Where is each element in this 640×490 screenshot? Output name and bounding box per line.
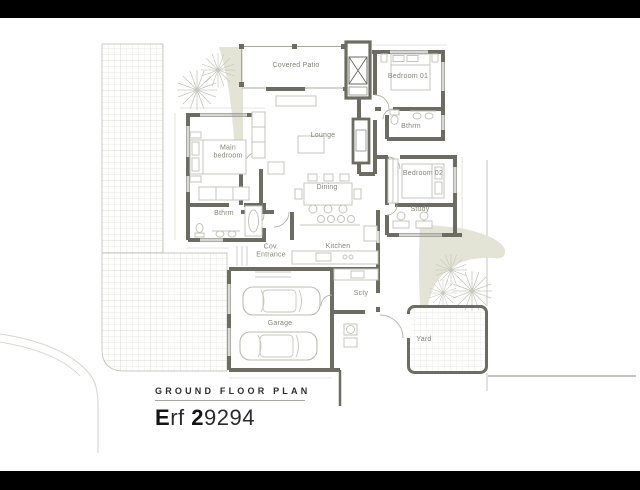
room-label-main-bedroom: Main bedroom xyxy=(205,145,251,162)
letterbox-top xyxy=(0,0,640,18)
room-label-bathroom-right: Bthrm xyxy=(401,123,421,131)
driveway-paving xyxy=(102,44,227,371)
room-label-kitchen: Kitchen xyxy=(326,243,351,251)
room-label-bedroom-01: Bedroom 01 xyxy=(388,73,428,81)
title-underline xyxy=(155,400,305,401)
letterbox-bottom xyxy=(0,471,640,490)
floor-plan-drawing xyxy=(0,0,640,490)
title-block: GROUND FLOOR PLAN Erf 29294 xyxy=(155,386,310,431)
room-label-bedroom-02: Bedroom 02 xyxy=(403,170,443,178)
room-label-covered-entrance: Cov. Entrance xyxy=(253,244,289,261)
room-label-garage: Garage xyxy=(268,320,293,328)
erf-part-bold-1: E xyxy=(155,405,170,430)
plan-title: GROUND FLOOR PLAN xyxy=(155,386,310,396)
erf-number: Erf 29294 xyxy=(155,405,310,431)
room-label-lounge: Lounge xyxy=(311,132,336,140)
room-label-dining: Dining xyxy=(316,184,337,192)
room-label-scullery: Scty xyxy=(354,290,368,298)
room-label-bathroom-left: Bthrm xyxy=(214,210,234,218)
floor-plan-page: Covered Patio Bedroom 01 Bthrm Bedroom 0… xyxy=(0,0,640,490)
erf-part-regular-1: rf xyxy=(170,405,191,430)
room-label-covered-patio: Covered Patio xyxy=(273,62,320,70)
room-label-yard: Yard xyxy=(416,336,431,344)
erf-part-bold-2: 2 xyxy=(191,405,204,430)
erf-part-regular-2: 9294 xyxy=(204,405,255,430)
room-label-study: Study xyxy=(411,206,430,214)
